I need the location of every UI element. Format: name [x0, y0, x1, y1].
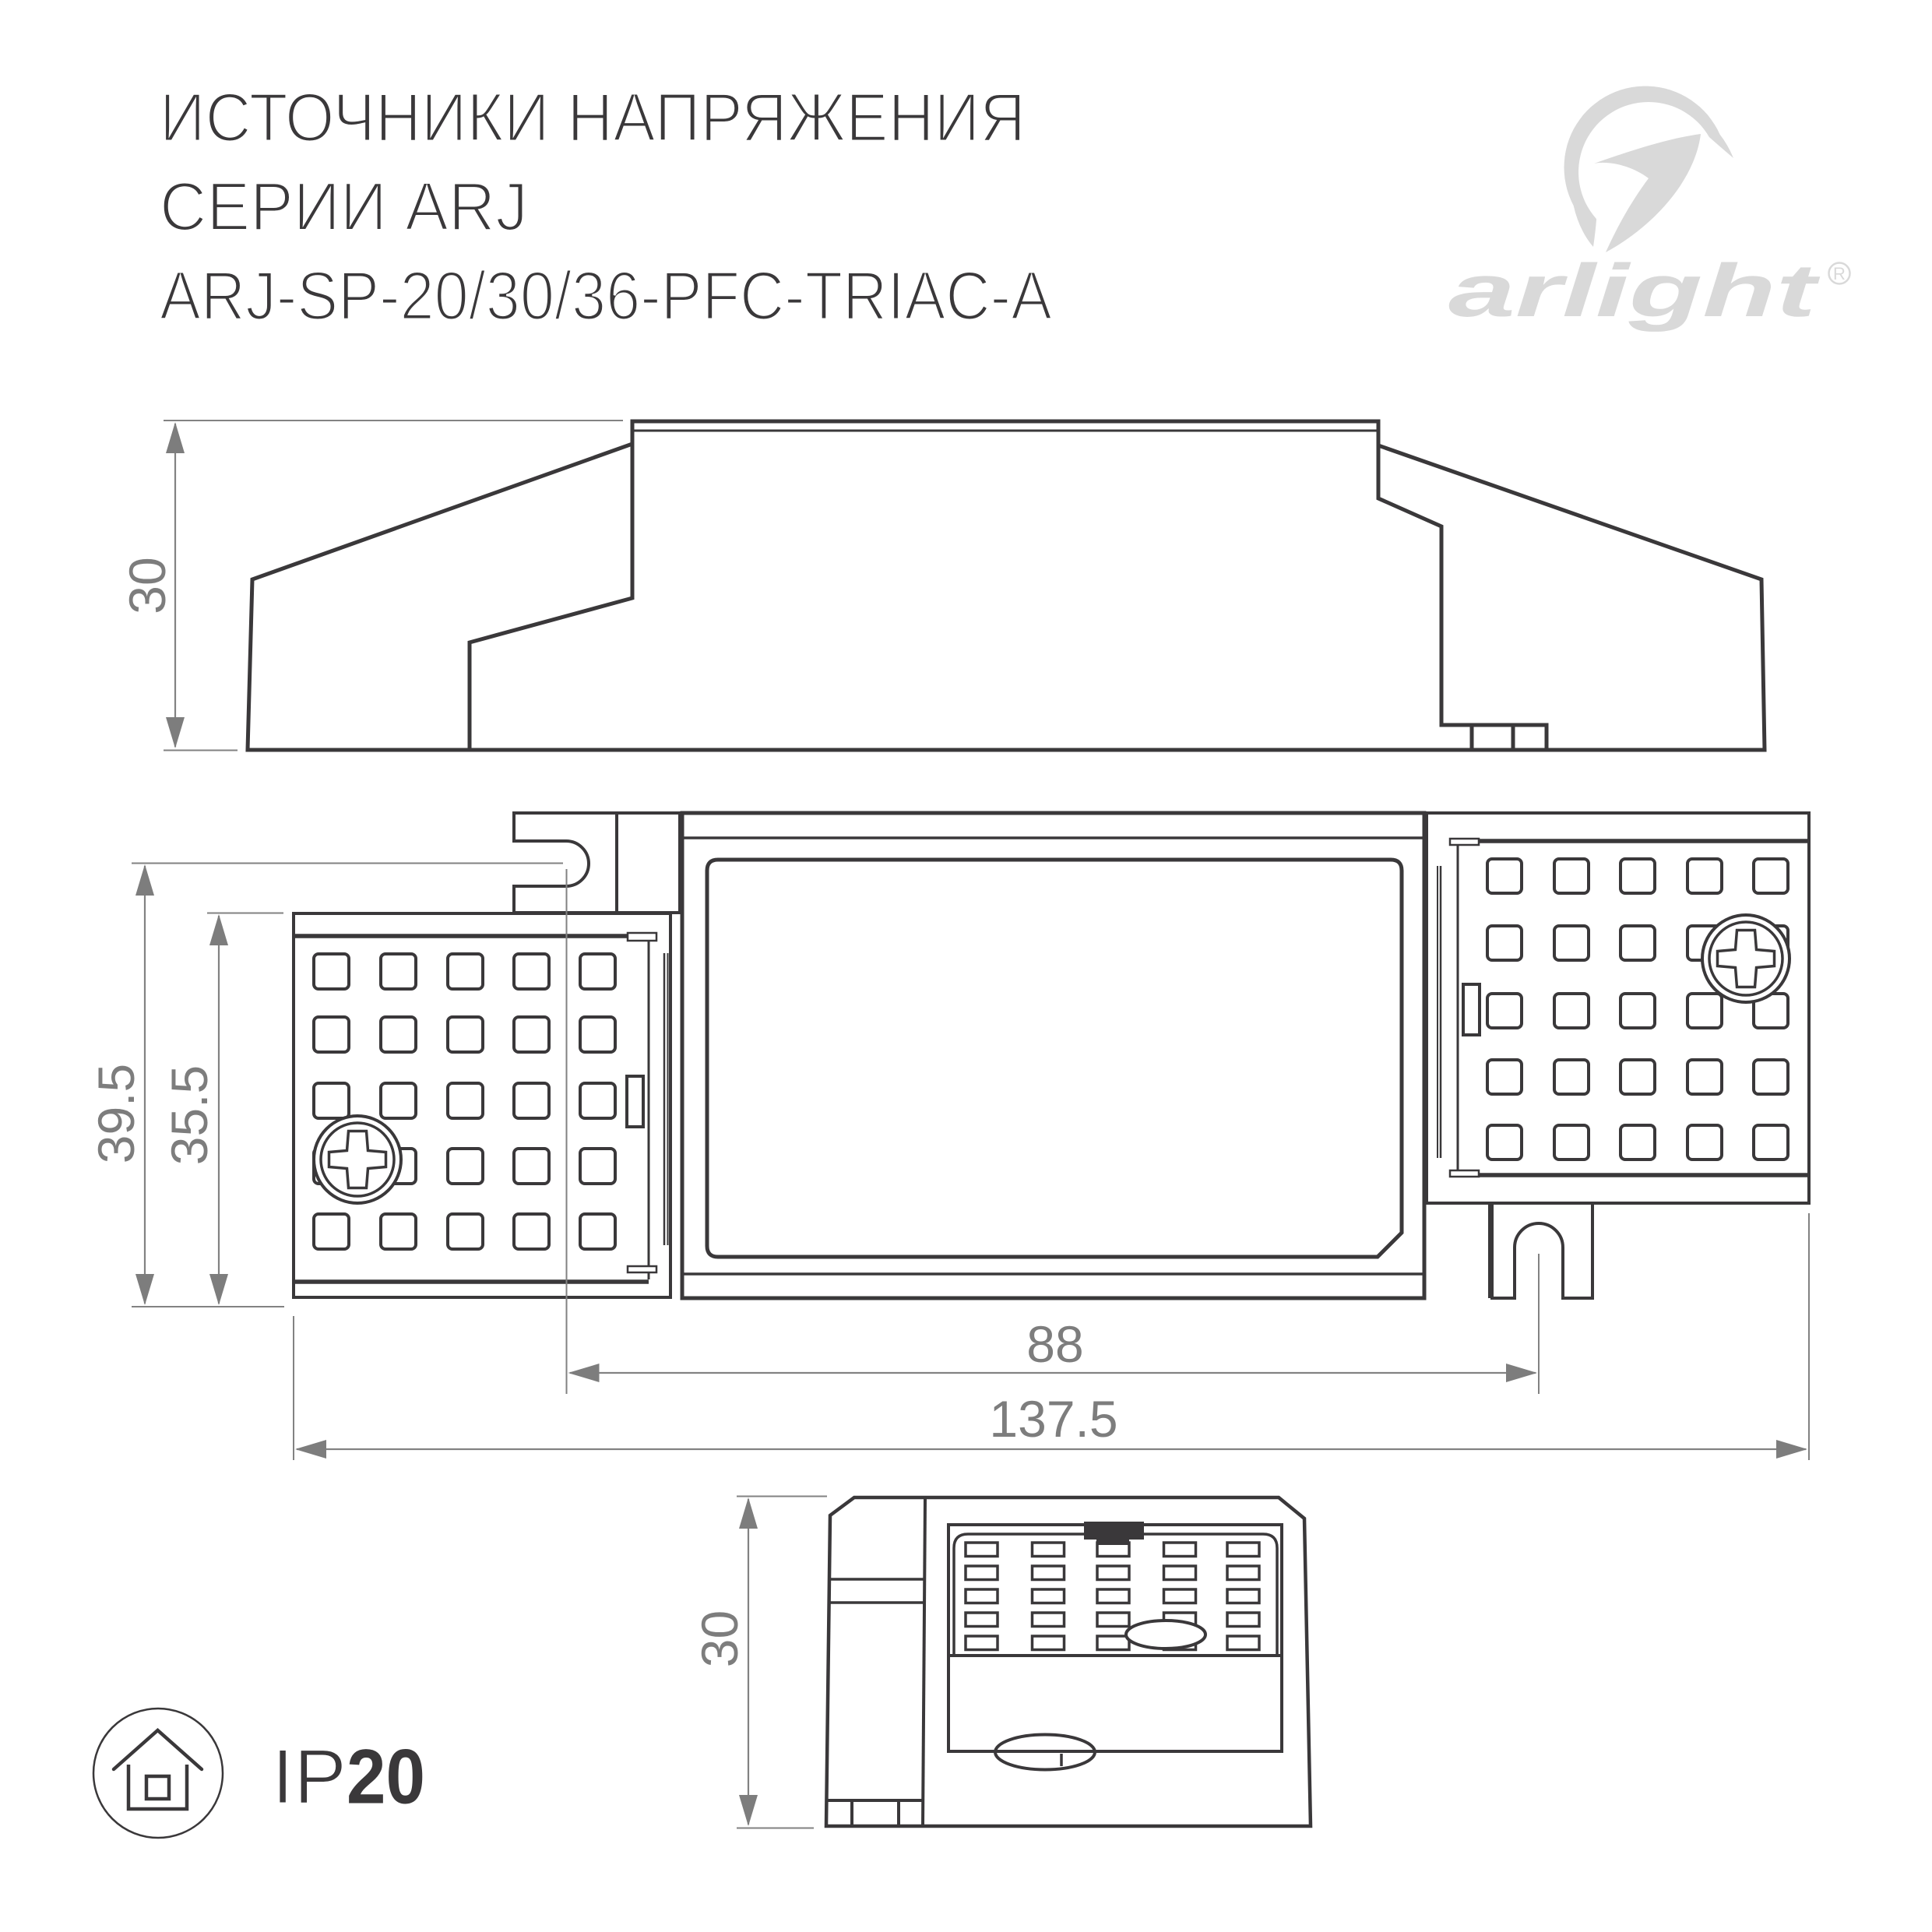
svg-text:IP20: IP20 [272, 1733, 425, 1820]
svg-text:137.5: 137.5 [989, 1390, 1117, 1448]
svg-text:39.5: 39.5 [87, 1064, 145, 1163]
svg-text:ARJ-SP-20/30/36-PFC-TRIAC-A: ARJ-SP-20/30/36-PFC-TRIAC-A [160, 257, 1052, 334]
svg-text:R: R [1833, 264, 1846, 283]
svg-text:88: 88 [1026, 1315, 1083, 1373]
svg-text:35.5: 35.5 [160, 1065, 218, 1165]
svg-text:30: 30 [118, 557, 176, 614]
svg-text:СЕРИИ ARJ: СЕРИИ ARJ [160, 168, 528, 245]
svg-text:ИСТОЧНИКИ НАПРЯЖЕНИЯ: ИСТОЧНИКИ НАПРЯЖЕНИЯ [160, 79, 1026, 156]
svg-text:30: 30 [691, 1610, 748, 1667]
svg-text:arlight: arlight [1448, 249, 1821, 333]
